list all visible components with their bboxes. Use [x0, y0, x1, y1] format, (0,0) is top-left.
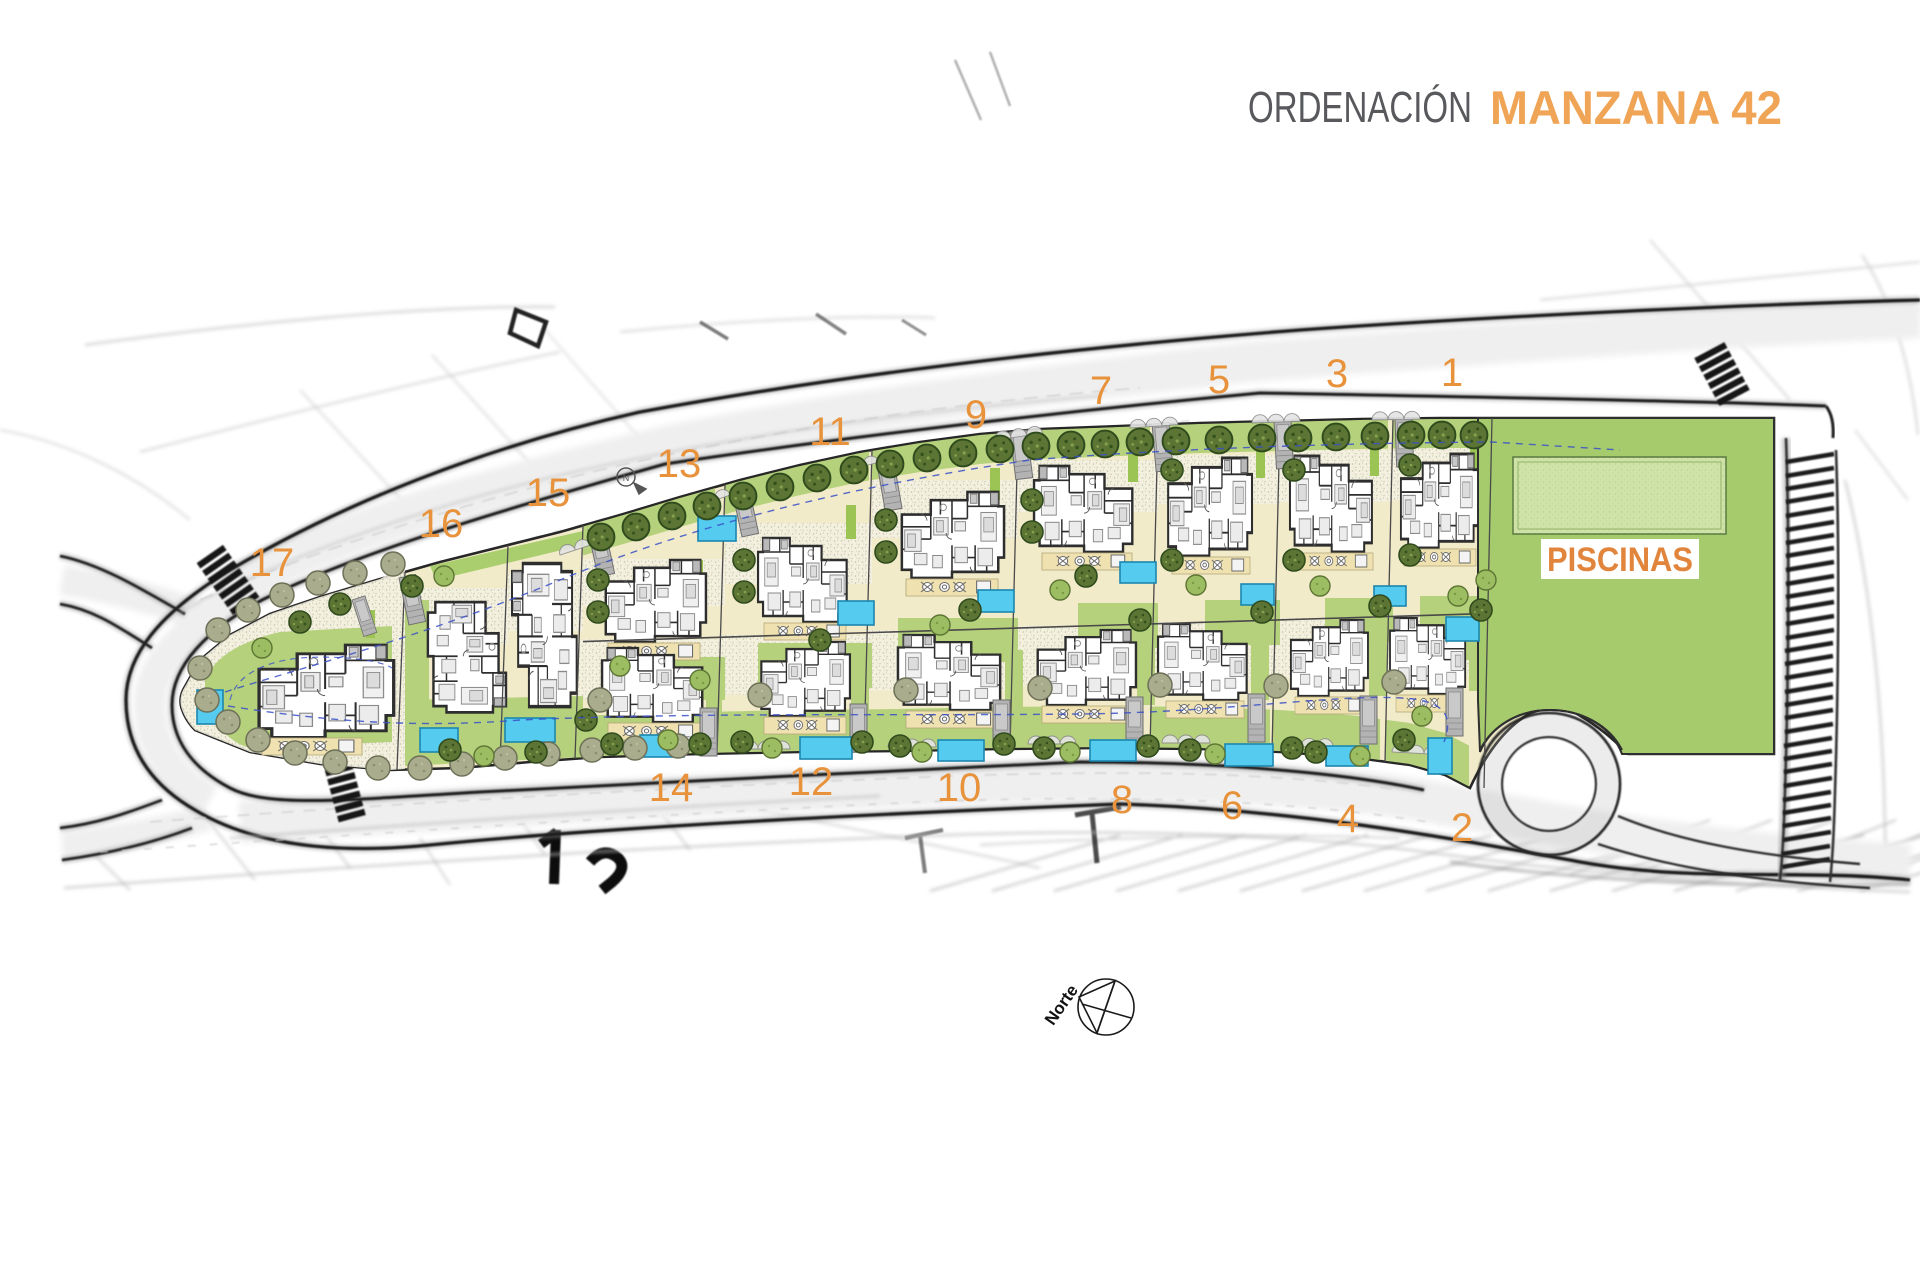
- svg-text:17: 17: [250, 541, 295, 585]
- svg-text:N: N: [623, 473, 630, 483]
- svg-text:9: 9: [965, 393, 987, 437]
- svg-text:15: 15: [526, 471, 571, 515]
- svg-text:2: 2: [1451, 806, 1473, 850]
- svg-text:11: 11: [809, 410, 851, 454]
- svg-text:16: 16: [419, 502, 464, 546]
- svg-text:12: 12: [789, 760, 834, 804]
- svg-text:1: 1: [1441, 351, 1463, 395]
- svg-text:PISCINAS: PISCINAS: [1547, 541, 1693, 579]
- svg-text:ORDENACIÓN: ORDENACIÓN: [1248, 83, 1472, 132]
- svg-text:14: 14: [649, 766, 694, 810]
- svg-text:13: 13: [657, 442, 702, 486]
- svg-text:3: 3: [1326, 352, 1348, 396]
- svg-text:6: 6: [1221, 784, 1243, 828]
- svg-text:10: 10: [937, 766, 982, 810]
- svg-text:5: 5: [1208, 358, 1230, 402]
- svg-text:7: 7: [1090, 369, 1112, 413]
- svg-text:8: 8: [1111, 778, 1133, 822]
- svg-text:MANZANA 42: MANZANA 42: [1490, 81, 1782, 134]
- svg-text:4: 4: [1337, 797, 1359, 841]
